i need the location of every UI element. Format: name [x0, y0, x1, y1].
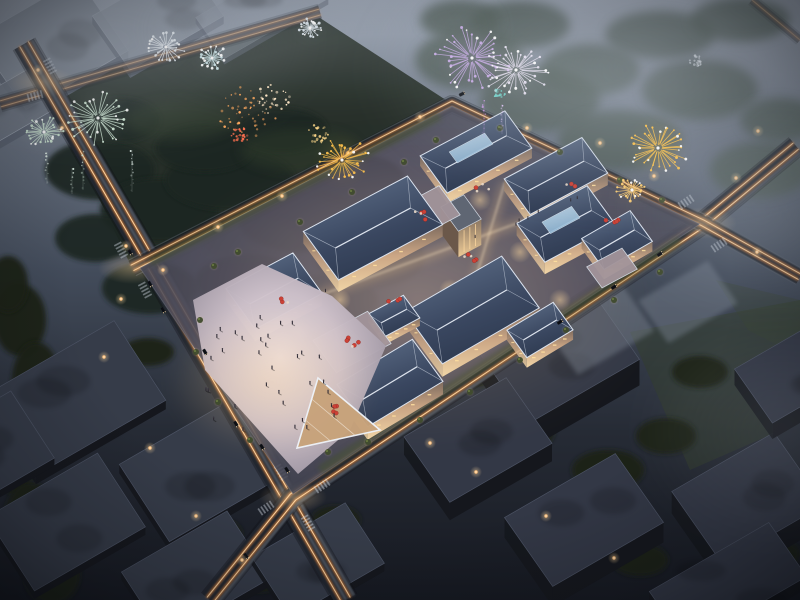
scene-canvas [0, 0, 800, 600]
vignette-overlay [0, 0, 800, 600]
rendering-root [0, 0, 800, 600]
